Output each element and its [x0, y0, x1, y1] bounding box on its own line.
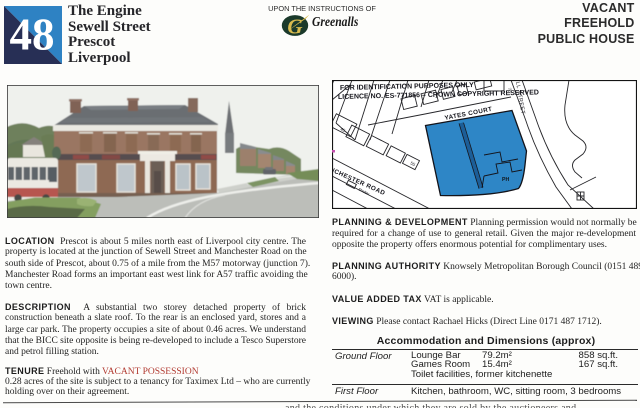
svg-text:PH: PH: [502, 177, 509, 183]
svg-text:G: G: [287, 15, 302, 39]
svg-text:48: 48: [10, 10, 55, 60]
